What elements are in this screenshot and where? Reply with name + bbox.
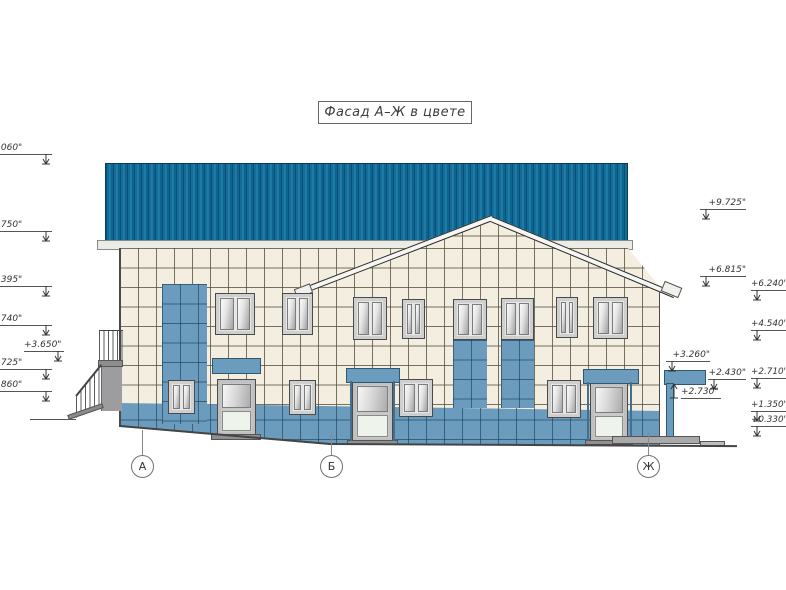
window-ground-2 <box>289 380 316 415</box>
window-leaf <box>358 302 369 335</box>
elevation-mark: .860" <box>0 380 52 392</box>
elevation-mark: .750" <box>0 220 52 232</box>
window-leaf <box>561 302 566 333</box>
down-arrow-icon <box>752 290 762 302</box>
window-leaf <box>173 385 180 409</box>
axis-line-b <box>331 430 332 455</box>
door-glass <box>222 384 251 408</box>
window-leaf <box>299 298 308 330</box>
door-glass <box>357 386 388 412</box>
window-leaf <box>598 302 609 334</box>
down-arrow-icon <box>667 361 677 373</box>
window-leaf <box>220 298 234 330</box>
elevation-mark: .060" <box>0 143 52 155</box>
eave-cap-right <box>661 281 683 298</box>
down-arrow-icon <box>752 426 762 438</box>
down-arrow-icon <box>701 209 711 221</box>
down-arrow-icon <box>41 325 51 337</box>
axis-label-a: А <box>139 460 147 473</box>
window-ground-3 <box>399 379 433 417</box>
axis-marker-b: Б <box>320 455 343 478</box>
stair-landing-support <box>101 367 122 411</box>
window-ground-1 <box>168 380 195 414</box>
window-upper-2 <box>282 293 313 335</box>
down-arrow-icon <box>701 276 711 288</box>
lintel-panel-a <box>212 358 261 374</box>
window-leaf <box>569 302 574 333</box>
blue-strip-2 <box>501 340 534 408</box>
window-leaf <box>519 303 529 335</box>
elevation-mark: +1.350" <box>751 400 786 412</box>
down-arrow-icon <box>41 154 51 166</box>
door-panel <box>595 416 623 437</box>
elevation-mark: .740" <box>0 314 52 326</box>
window-ground-4 <box>547 380 581 418</box>
elevation-mark: +2.430" <box>708 368 746 380</box>
elevation-mark: +3.260" <box>666 350 710 362</box>
blue-strip-1 <box>453 340 487 408</box>
window-leaf <box>458 304 469 335</box>
door-panel <box>222 411 251 431</box>
window-upper-7 <box>556 297 578 338</box>
main-roof <box>105 163 628 241</box>
elevation-mark: +6.240" <box>751 279 786 291</box>
door-axis-b <box>352 381 393 442</box>
window-leaf <box>418 384 429 412</box>
down-arrow-icon <box>53 351 63 363</box>
window-leaf <box>372 302 383 335</box>
canopy-b-post-left <box>350 381 352 441</box>
canopy-zh-post-left <box>587 382 589 441</box>
stair-landing-railing <box>99 330 123 362</box>
elevation-mark: +3.650" <box>24 340 64 352</box>
down-arrow-icon <box>41 286 51 298</box>
window-leaf <box>407 304 412 334</box>
elevation-mark: +2.730" <box>681 387 721 399</box>
window-upper-8 <box>593 297 628 339</box>
door-axis-zh <box>590 382 628 442</box>
axis-label-b: Б <box>328 460 336 473</box>
window-leaf <box>506 303 516 335</box>
window-upper-1 <box>215 293 255 335</box>
door-axis-a <box>217 379 256 436</box>
window-upper-4 <box>402 299 425 339</box>
facade-elevation-drawing: Фасад А–Ж в цвете <box>0 0 786 590</box>
wall-right-edge <box>659 288 661 446</box>
door-panel <box>357 415 388 437</box>
down-arrow-icon <box>752 330 762 342</box>
window-leaf <box>612 302 623 334</box>
elevation-mark: .725" <box>0 358 52 370</box>
window-leaf <box>566 385 577 413</box>
down-arrow-icon <box>41 391 51 403</box>
axis-line-zh <box>648 432 649 455</box>
axis-line-a <box>142 430 143 455</box>
window-leaf <box>552 385 563 413</box>
window-leaf <box>183 385 190 409</box>
up-arrow-icon <box>669 382 679 399</box>
axis-marker-zh: Ж <box>637 455 660 478</box>
right-step-upper <box>612 436 700 444</box>
elevation-mark: +2.710" <box>751 367 786 379</box>
canopy-b-post-right <box>393 381 395 441</box>
window-leaf <box>472 304 483 335</box>
stair-landing-slab <box>98 360 123 367</box>
ground-line-left <box>30 419 76 420</box>
elevation-mark: .395" <box>0 275 52 287</box>
window-leaf <box>404 384 415 412</box>
door-glass <box>595 387 623 413</box>
elevation-mark: +0.330" <box>751 415 786 427</box>
elevation-mark: +9.725" <box>700 198 746 210</box>
window-leaf <box>237 298 251 330</box>
window-leaf <box>415 304 420 334</box>
canopy-door-b <box>346 368 400 383</box>
window-leaf <box>287 298 296 330</box>
down-arrow-icon <box>41 231 51 243</box>
window-upper-6 <box>501 298 534 340</box>
axis-label-zh: Ж <box>643 460 655 473</box>
window-leaf <box>304 385 311 410</box>
window-upper-3 <box>353 297 387 340</box>
canopy-zh-post-right <box>630 382 632 441</box>
axis-marker-a: А <box>131 455 154 478</box>
elevation-mark: +6.815" <box>700 265 746 277</box>
elevation-mark: +4.540" <box>751 319 786 331</box>
drawing-title: Фасад А–Ж в цвете <box>324 105 465 120</box>
down-arrow-icon <box>752 378 762 390</box>
window-upper-5 <box>453 299 487 340</box>
drawing-title-box: Фасад А–Ж в цвете <box>318 101 472 124</box>
window-leaf <box>294 385 301 410</box>
